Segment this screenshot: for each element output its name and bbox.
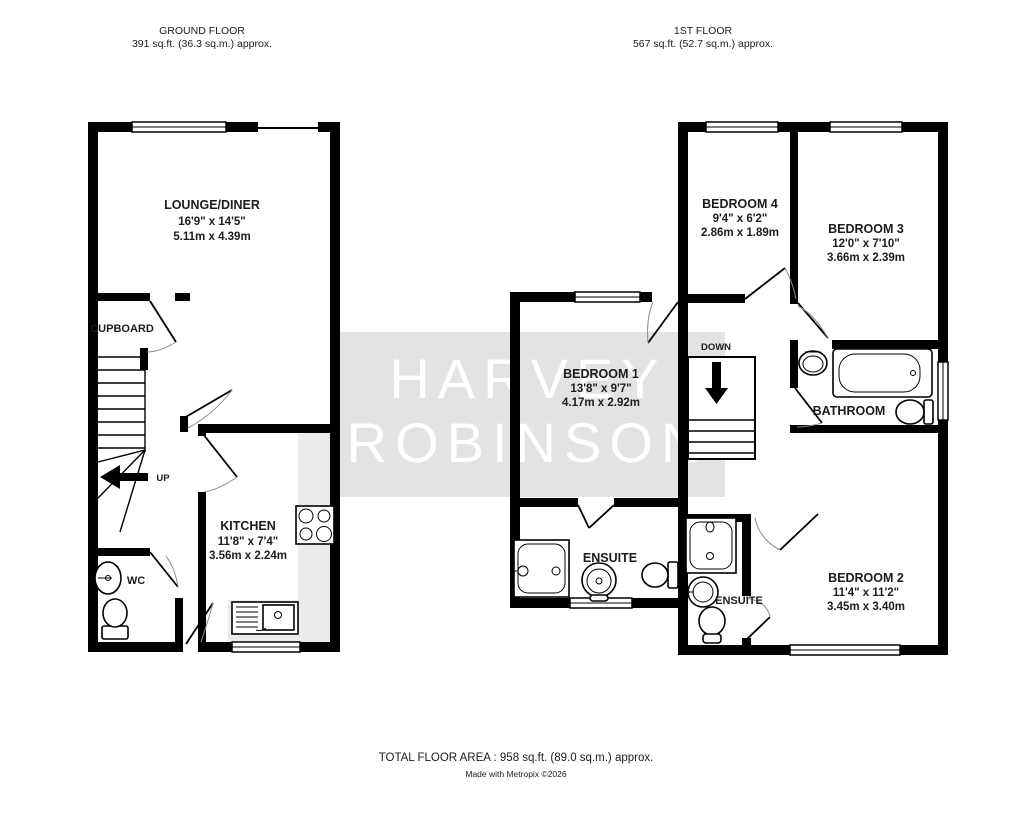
ensuite2-toilet-bowl-icon bbox=[699, 607, 725, 635]
up-arrow-icon bbox=[100, 465, 148, 489]
wall-segment bbox=[678, 122, 688, 655]
ensuite1-toilet-base-icon bbox=[668, 562, 678, 588]
room-label-wc: WC bbox=[127, 575, 145, 587]
door-leaf bbox=[578, 505, 589, 528]
wall-segment bbox=[678, 645, 790, 655]
door-swing-arc bbox=[166, 556, 178, 587]
staircase-up: UP bbox=[98, 352, 170, 532]
room-dims-imperial-kitchen: 11'8" x 7'4" bbox=[218, 536, 279, 548]
door-leaf bbox=[589, 505, 614, 528]
first-floor-plan: DOWN bbox=[510, 122, 948, 655]
wall-segment bbox=[900, 645, 948, 655]
room-dims-imperial-lounge: 16'9" x 14'5" bbox=[178, 216, 246, 228]
floorplan-drawing: GROUND FLOOR 391 sq.ft. (36.3 sq.m.) app… bbox=[0, 0, 1024, 816]
room-dims-metric-bedroom2: 3.45m x 3.40m bbox=[827, 601, 905, 613]
ensuite2-fixtures bbox=[686, 518, 736, 643]
ensuite1-fixtures bbox=[514, 540, 678, 601]
wc-fixtures bbox=[95, 562, 128, 639]
room-dims-imperial-bedroom4: 9'4" x 6'2" bbox=[713, 213, 768, 225]
wall-segment bbox=[742, 638, 751, 655]
total-floor-area: TOTAL FLOOR AREA : 958 sq.ft. (89.0 sq.m… bbox=[379, 752, 654, 764]
wall-segment bbox=[300, 642, 340, 652]
ensuite2-toilet-base-icon bbox=[703, 634, 721, 643]
stair-winder bbox=[98, 450, 145, 462]
wall-segment bbox=[832, 340, 948, 349]
wall-segment bbox=[632, 598, 678, 608]
wall-segment bbox=[88, 548, 150, 556]
room-dims-imperial-bedroom1: 13'8" x 9'7" bbox=[570, 383, 631, 395]
wall-segment bbox=[226, 122, 258, 132]
door-swing-arc bbox=[188, 390, 232, 428]
wall-segment bbox=[790, 340, 798, 388]
wall-segment bbox=[938, 122, 948, 362]
door-leaf bbox=[184, 390, 232, 418]
wall-segment bbox=[742, 514, 751, 596]
wall-segment bbox=[198, 492, 206, 652]
door-leaf bbox=[203, 434, 237, 477]
wall-segment bbox=[510, 498, 578, 507]
room-label-bedroom3: BEDROOM 3 bbox=[828, 222, 904, 236]
wall-segment bbox=[938, 420, 948, 655]
wall-segment bbox=[88, 642, 183, 652]
watermark: HARVEY ROBINSON bbox=[333, 332, 725, 497]
wall-segment bbox=[778, 122, 830, 132]
stairwell bbox=[688, 357, 755, 459]
first-floor-title: 1ST FLOOR bbox=[674, 25, 733, 37]
room-dims-imperial-bedroom2: 11'4" x 11'2" bbox=[833, 587, 899, 599]
wall-segment bbox=[614, 498, 688, 507]
room-label-bedroom4: BEDROOM 4 bbox=[702, 197, 778, 211]
wall-segment bbox=[175, 293, 190, 301]
door-leaf bbox=[150, 301, 176, 342]
wall-segment bbox=[206, 642, 232, 652]
room-label-cupboard: CUPBOARD bbox=[90, 323, 154, 335]
ensuite1-sink-base-icon bbox=[590, 595, 608, 601]
floorplan-page: GROUND FLOOR 391 sq.ft. (36.3 sq.m.) app… bbox=[0, 0, 1024, 816]
room-dims-metric-bedroom4: 2.86m x 1.89m bbox=[701, 227, 779, 239]
shower-icon bbox=[514, 540, 569, 597]
wall-segment bbox=[206, 424, 340, 433]
bathtub-icon bbox=[833, 349, 932, 397]
bathroom-toilet-bowl-icon bbox=[896, 400, 924, 424]
stairs-down-label: DOWN bbox=[701, 342, 731, 353]
metropix-credit: Made with Metropix ©2026 bbox=[465, 769, 567, 779]
door-leaf bbox=[745, 268, 785, 299]
stairs-up-label: UP bbox=[156, 473, 170, 484]
wall-segment bbox=[790, 122, 798, 304]
room-label-ensuite1: ENSUITE bbox=[583, 551, 637, 565]
door-swing-arc bbox=[204, 477, 237, 492]
door-leaf bbox=[780, 514, 818, 550]
wall-segment bbox=[510, 598, 570, 608]
door-swing-arc bbox=[147, 342, 176, 352]
ground-floor-plan: UP bbox=[88, 122, 340, 652]
ground-floor-area: 391 sq.ft. (36.3 sq.m.) approx. bbox=[132, 38, 272, 50]
wall-segment bbox=[790, 425, 948, 433]
room-dims-metric-kitchen: 3.56m x 2.24m bbox=[209, 550, 287, 562]
wall-segment bbox=[198, 424, 206, 436]
wall-segment bbox=[688, 294, 745, 303]
wall-segment bbox=[180, 416, 188, 432]
shower-icon bbox=[686, 518, 736, 573]
first-floor-area: 567 sq.ft. (52.7 sq.m.) approx. bbox=[633, 38, 773, 50]
door-swing-arc bbox=[755, 518, 780, 550]
wall-segment bbox=[640, 292, 652, 302]
wall-segment bbox=[140, 348, 148, 370]
wall-segment bbox=[98, 293, 150, 301]
wall-segment bbox=[330, 122, 340, 652]
kitchen-sink-bowl-icon bbox=[263, 605, 294, 630]
ensuite1-toilet-bowl-icon bbox=[642, 563, 668, 587]
door-leaf bbox=[746, 617, 770, 640]
room-label-bathroom: BATHROOM bbox=[813, 404, 886, 418]
room-label-bedroom2: BEDROOM 2 bbox=[828, 571, 904, 585]
room-label-kitchen: KITCHEN bbox=[220, 519, 276, 533]
watermark-line2: ROBINSON bbox=[347, 411, 710, 474]
wall-segment bbox=[175, 598, 183, 642]
room-dims-metric-lounge: 5.11m x 4.39m bbox=[173, 231, 250, 243]
room-label-bedroom1: BEDROOM 1 bbox=[563, 367, 639, 381]
room-dims-metric-bedroom1: 4.17m x 2.92m bbox=[562, 397, 640, 409]
room-label-lounge: LOUNGE/DINER bbox=[164, 198, 260, 212]
room-dims-imperial-bedroom3: 12'0" x 7'10" bbox=[832, 238, 900, 250]
ground-floor-title: GROUND FLOOR bbox=[159, 25, 245, 37]
wc-toilet-bowl-icon bbox=[103, 599, 127, 627]
bathroom-toilet-base-icon bbox=[924, 400, 933, 424]
room-label-ensuite2: ENSUITE bbox=[715, 595, 763, 607]
staircase-down: DOWN bbox=[688, 342, 755, 459]
room-dims-metric-bedroom3: 3.66m x 2.39m bbox=[827, 252, 905, 264]
wc-toilet-base-icon bbox=[102, 626, 128, 639]
